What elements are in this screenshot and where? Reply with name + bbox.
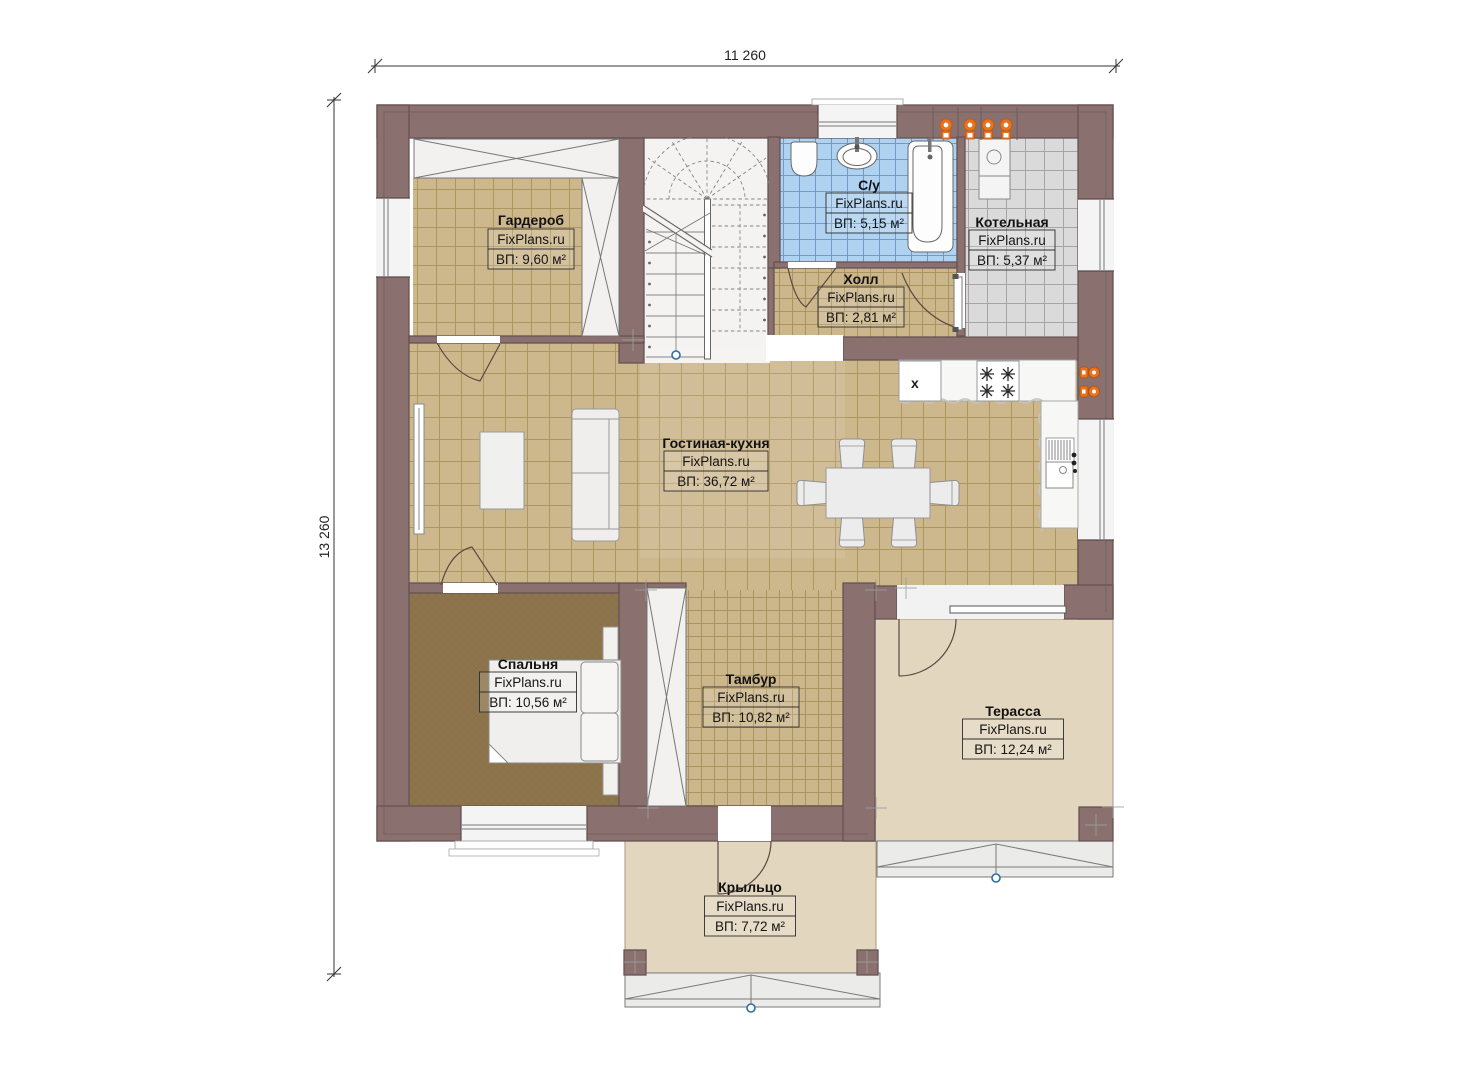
svg-text:FixPlans.ru: FixPlans.ru [682, 454, 750, 469]
svg-text:Холл: Холл [843, 271, 878, 287]
svg-text:ВП: 5,37 м²: ВП: 5,37 м² [977, 253, 1048, 268]
svg-text:FixPlans.ru: FixPlans.ru [494, 675, 562, 690]
svg-text:ВП: 5,15 м²: ВП: 5,15 м² [834, 216, 905, 231]
svg-text:x: x [911, 375, 919, 391]
svg-text:Тамбур: Тамбур [726, 671, 777, 687]
svg-text:FixPlans.ru: FixPlans.ru [979, 722, 1047, 737]
svg-text:FixPlans.ru: FixPlans.ru [497, 232, 565, 247]
svg-text:Спальня: Спальня [498, 656, 558, 672]
svg-text:FixPlans.ru: FixPlans.ru [827, 290, 895, 305]
svg-text:Котельная: Котельная [975, 214, 1048, 230]
svg-text:13 260: 13 260 [316, 515, 332, 558]
svg-text:ВП: 12,24 м²: ВП: 12,24 м² [974, 742, 1052, 757]
svg-text:ВП: 7,72 м²: ВП: 7,72 м² [715, 919, 786, 934]
svg-text:FixPlans.ru: FixPlans.ru [835, 196, 903, 211]
svg-text:FixPlans.ru: FixPlans.ru [717, 690, 785, 705]
svg-text:11 260: 11 260 [724, 47, 766, 63]
svg-text:ВП: 9,60 м²: ВП: 9,60 м² [496, 252, 567, 267]
svg-text:Гостиная-кухня: Гостиная-кухня [662, 435, 769, 451]
svg-text:С/у: С/у [858, 177, 880, 193]
svg-text:Гардероб: Гардероб [498, 212, 565, 228]
svg-text:Крыльцо: Крыльцо [718, 879, 782, 895]
svg-text:ВП: 10,82 м²: ВП: 10,82 м² [712, 710, 790, 725]
svg-text:FixPlans.ru: FixPlans.ru [716, 899, 784, 914]
svg-text:Терасса: Терасса [985, 703, 1041, 719]
svg-text:ВП: 36,72 м²: ВП: 36,72 м² [677, 474, 755, 489]
svg-text:FixPlans.ru: FixPlans.ru [978, 233, 1046, 248]
svg-text:ВП: 10,56 м²: ВП: 10,56 м² [489, 695, 567, 710]
svg-text:ВП: 2,81 м²: ВП: 2,81 м² [826, 310, 897, 325]
